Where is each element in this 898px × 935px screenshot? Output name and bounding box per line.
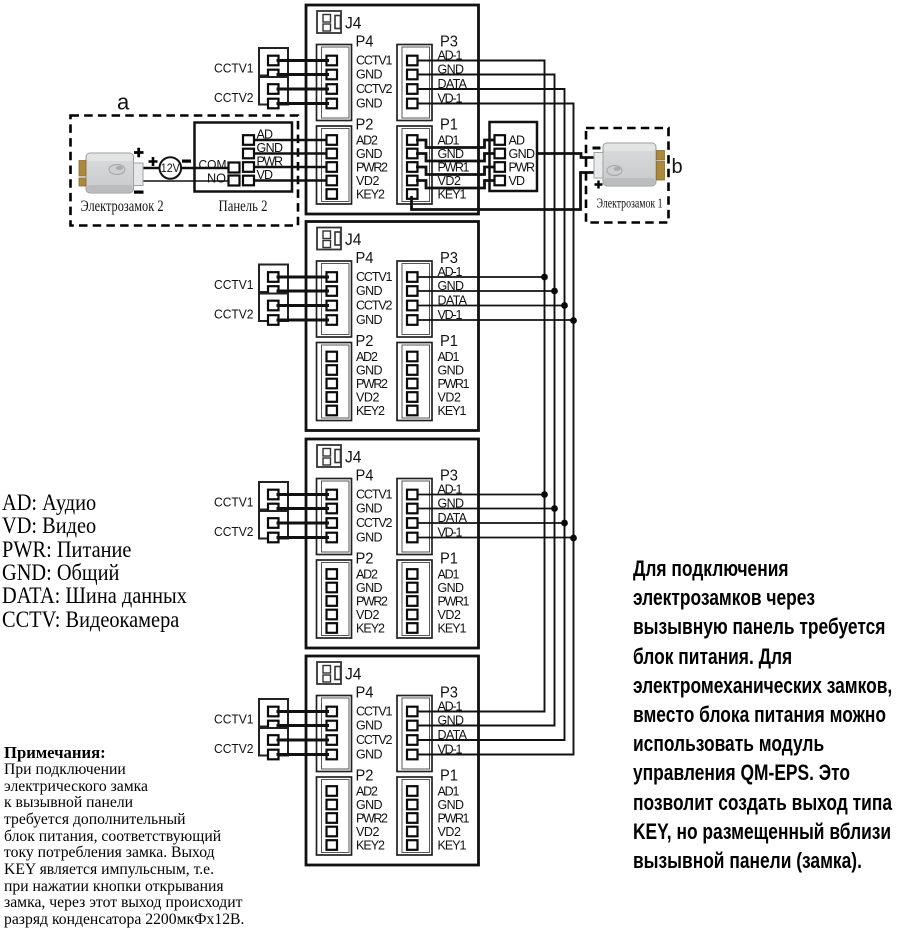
svg-text:AD: AD	[257, 128, 274, 142]
svg-text:COM: COM	[199, 158, 227, 172]
svg-text:AD: AD	[509, 134, 526, 148]
svg-text:12V: 12V	[161, 163, 180, 175]
svg-text:Панель 2: Панель 2	[219, 198, 268, 215]
svg-text:b: b	[672, 156, 683, 178]
svg-text:GND: GND	[257, 141, 284, 155]
svg-text:Электрозамок 2: Электрозамок 2	[81, 198, 164, 215]
svg-text:GND: GND	[509, 147, 536, 161]
svg-text:NO: NO	[207, 172, 226, 186]
svg-text:PWR: PWR	[257, 155, 284, 169]
svg-text:Электрозамок 1: Электрозамок 1	[597, 197, 663, 212]
svg-text:a: a	[117, 90, 130, 115]
svg-text:VD: VD	[257, 168, 274, 182]
svg-text:VD: VD	[509, 174, 526, 188]
svg-text:PWR: PWR	[509, 161, 536, 175]
